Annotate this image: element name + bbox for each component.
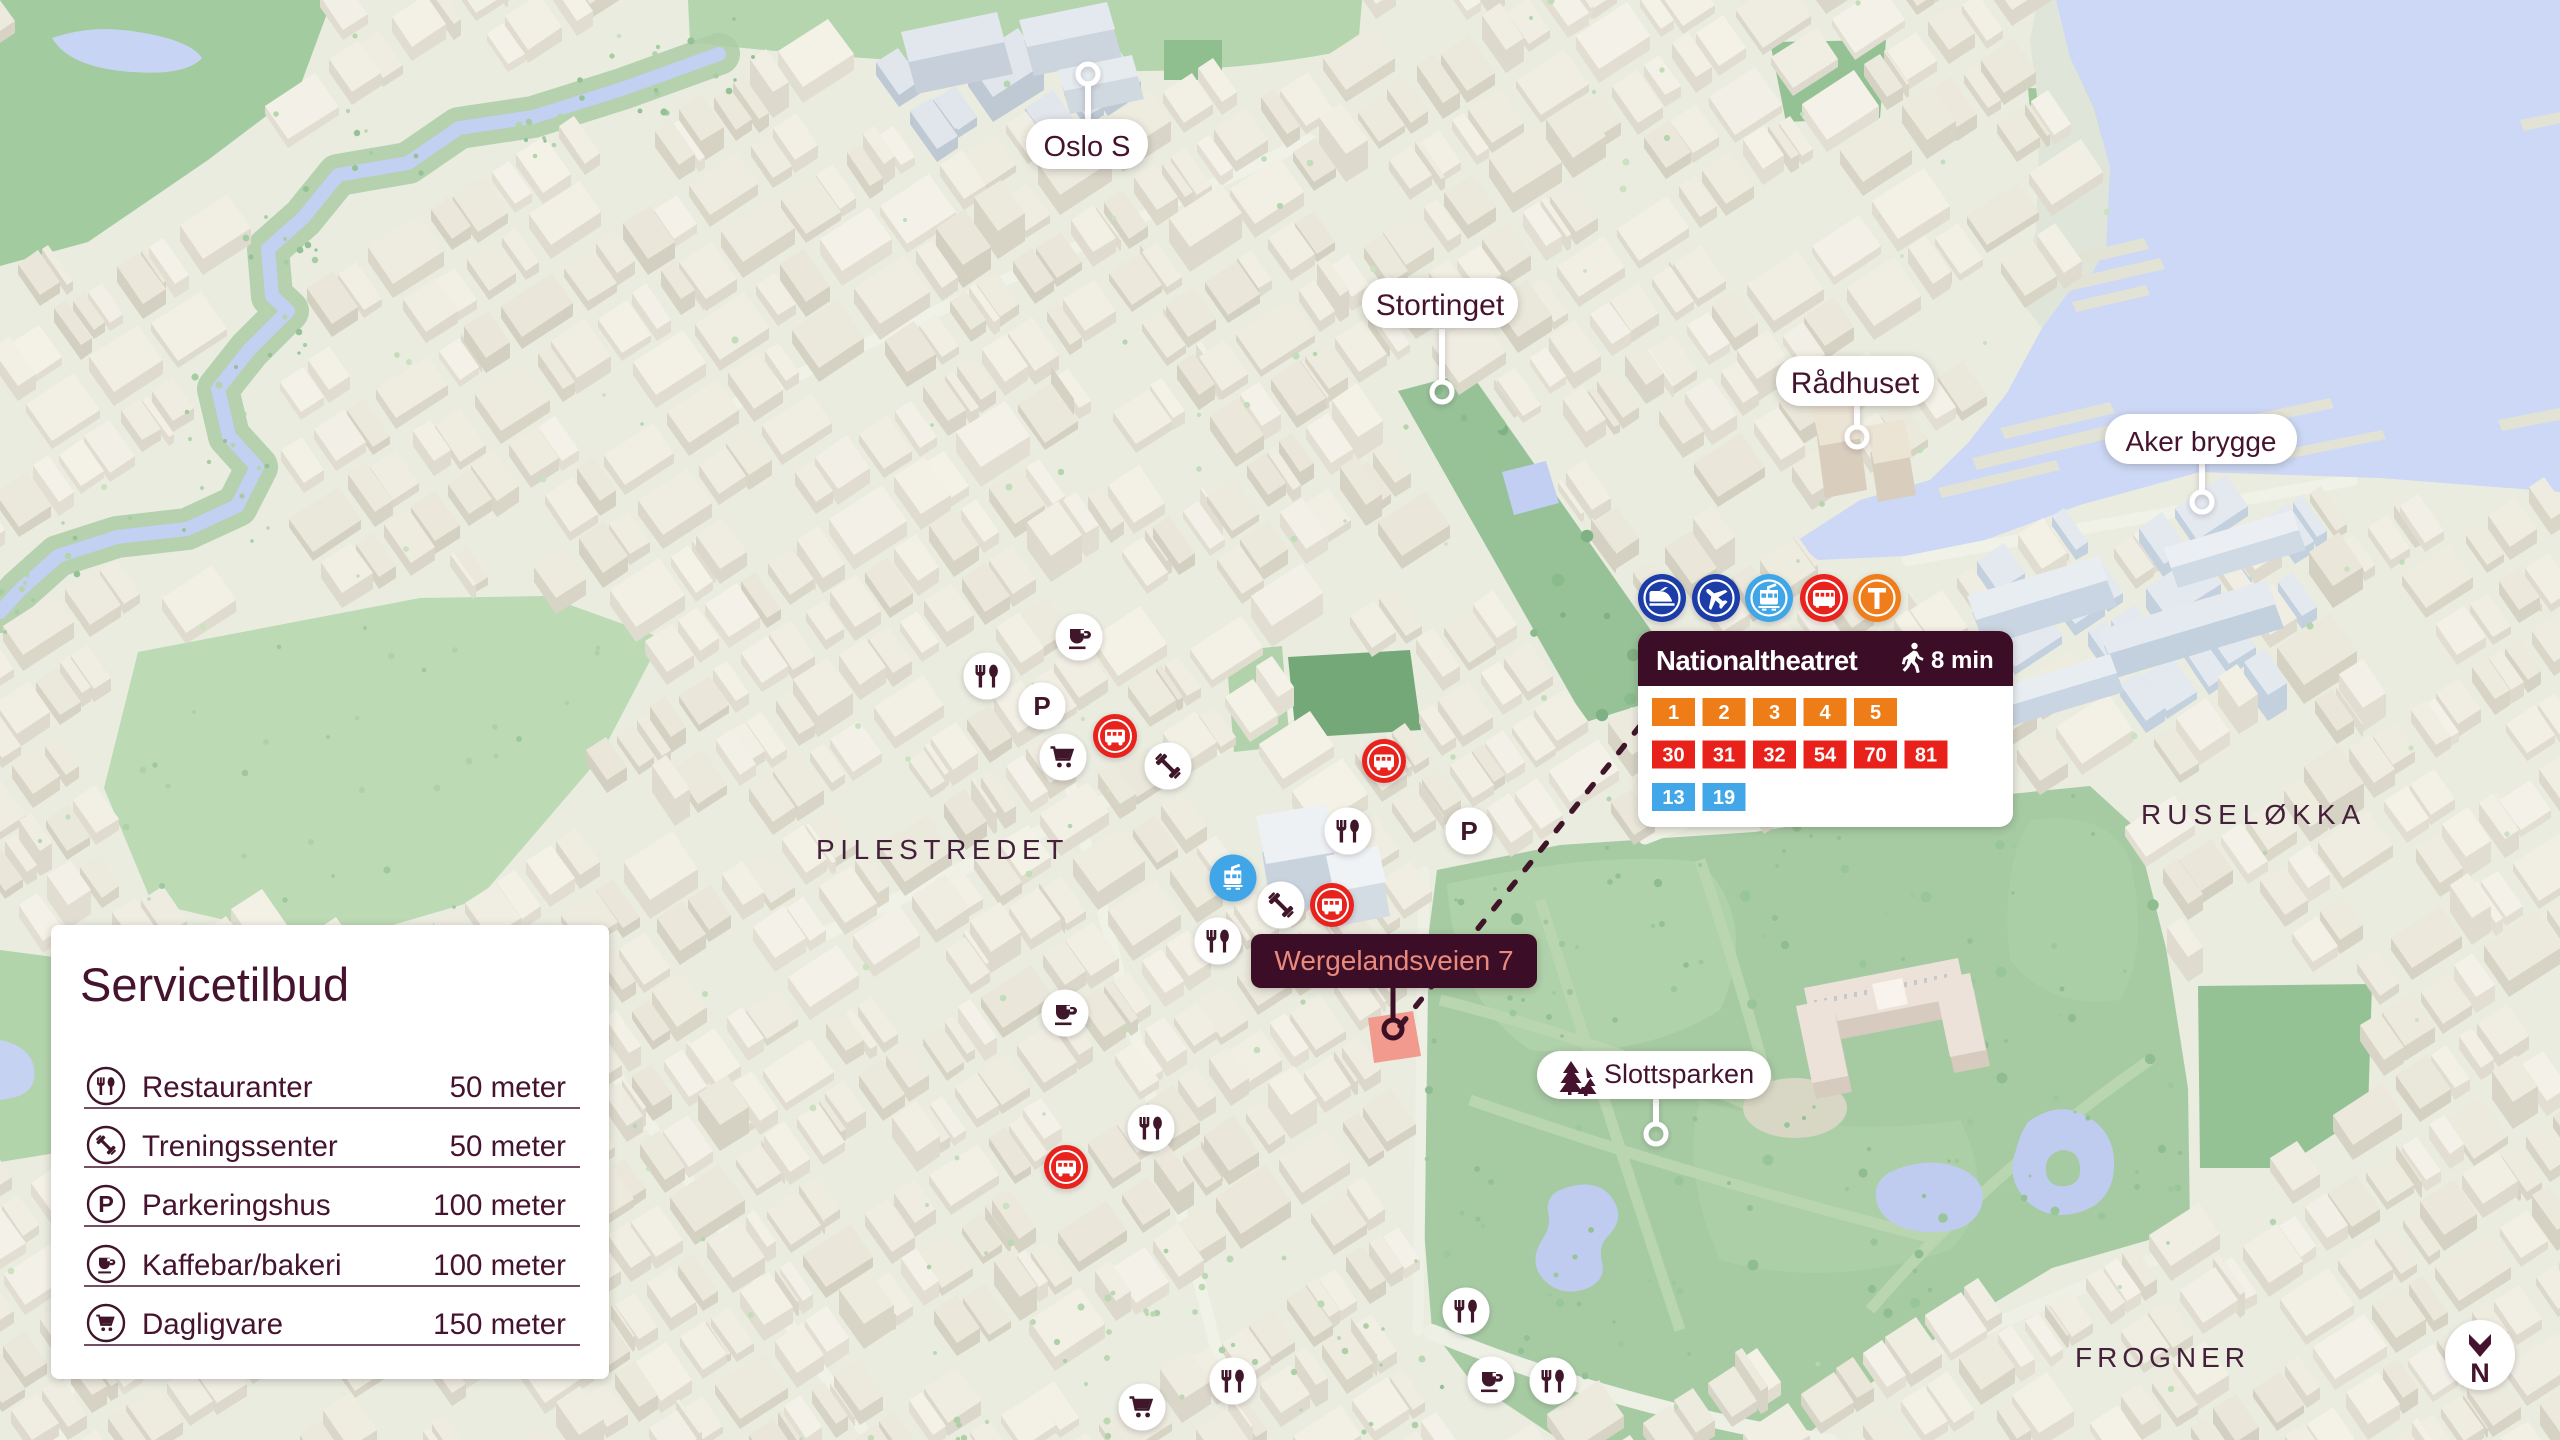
svg-text:Kaffebar/bakeri: Kaffebar/bakeri (142, 1249, 342, 1282)
svg-text:19: 19 (1713, 787, 1735, 809)
svg-text:Restauranter: Restauranter (142, 1071, 313, 1104)
svg-text:Slottsparken: Slottsparken (1604, 1059, 1754, 1089)
svg-text:54: 54 (1814, 745, 1837, 767)
svg-text:Stortinget: Stortinget (1376, 289, 1505, 322)
svg-text:70: 70 (1864, 745, 1886, 767)
svg-text:2: 2 (1718, 702, 1729, 724)
svg-text:Nationaltheatret: Nationaltheatret (1656, 645, 1858, 676)
svg-text:5: 5 (1870, 702, 1881, 724)
svg-text:P: P (1460, 816, 1477, 846)
svg-text:Oslo S: Oslo S (1043, 131, 1130, 163)
svg-text:8 min: 8 min (1931, 647, 1994, 674)
svg-text:PILESTREDET: PILESTREDET (816, 834, 1069, 865)
svg-text:Servicetilbud: Servicetilbud (80, 958, 349, 1011)
svg-text:Wergelandsveien 7: Wergelandsveien 7 (1274, 945, 1513, 976)
svg-text:100 meter: 100 meter (433, 1249, 566, 1282)
svg-text:N: N (2470, 1358, 2490, 1388)
svg-text:Rådhuset: Rådhuset (1791, 367, 1920, 400)
svg-text:32: 32 (1763, 745, 1785, 767)
svg-text:81: 81 (1915, 745, 1937, 767)
svg-text:50 meter: 50 meter (450, 1130, 567, 1163)
svg-text:Dagligvare: Dagligvare (142, 1308, 283, 1341)
svg-text:Parkeringshus: Parkeringshus (142, 1189, 331, 1222)
svg-text:P: P (98, 1191, 114, 1217)
svg-text:1: 1 (1668, 702, 1679, 724)
svg-text:30: 30 (1662, 745, 1684, 767)
svg-text:Treningssenter: Treningssenter (142, 1130, 338, 1163)
svg-text:3: 3 (1769, 702, 1780, 724)
svg-text:P: P (1033, 691, 1050, 721)
svg-text:31: 31 (1713, 745, 1735, 767)
svg-text:13: 13 (1662, 787, 1684, 809)
svg-text:FROGNER: FROGNER (2075, 1342, 2250, 1373)
svg-text:RUSELØKKA: RUSELØKKA (2141, 799, 2366, 830)
svg-text:4: 4 (1819, 702, 1831, 724)
svg-text:50 meter: 50 meter (450, 1071, 567, 1104)
svg-text:100 meter: 100 meter (433, 1189, 566, 1222)
svg-text:150 meter: 150 meter (433, 1308, 566, 1341)
svg-text:Aker brygge: Aker brygge (2126, 426, 2277, 457)
